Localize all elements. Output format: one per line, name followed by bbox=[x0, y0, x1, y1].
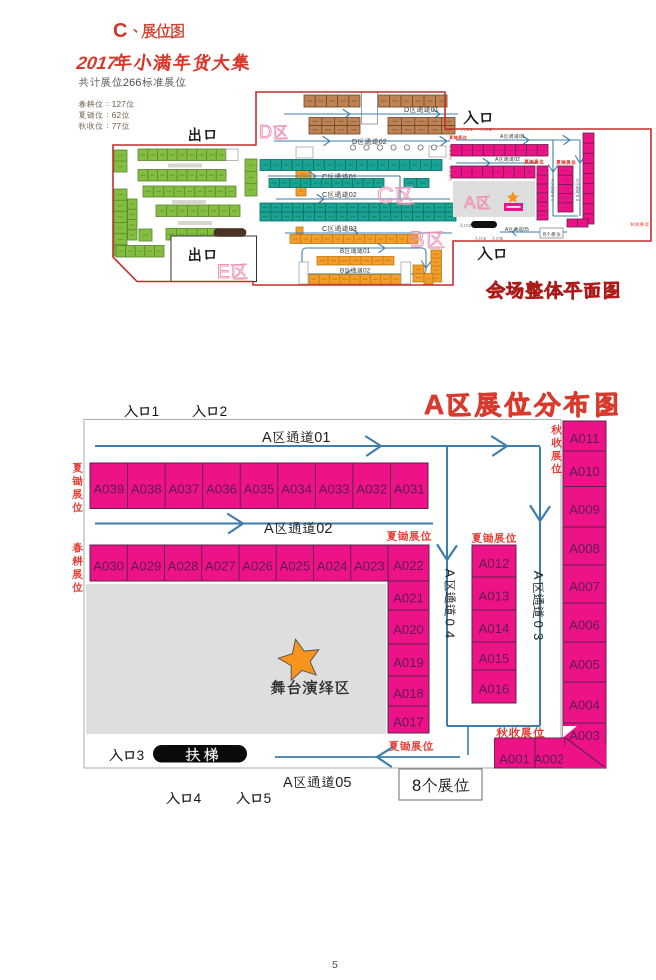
svg-text:01: 01 bbox=[314, 430, 330, 446]
svg-text:05: 05 bbox=[335, 775, 351, 791]
svg-text:A008: A008 bbox=[569, 541, 600, 556]
svg-text:A013: A013 bbox=[479, 589, 510, 604]
svg-text:05: 05 bbox=[523, 227, 529, 233]
svg-text:A025: A025 bbox=[279, 559, 310, 574]
svg-text:A033: A033 bbox=[319, 481, 350, 496]
svg-text:C: C bbox=[322, 224, 327, 233]
svg-text:02: 02 bbox=[316, 521, 332, 537]
svg-text:C: C bbox=[322, 190, 327, 199]
svg-text:A005: A005 bbox=[569, 657, 600, 672]
svg-text:266: 266 bbox=[123, 77, 142, 89]
svg-text:A: A bbox=[500, 134, 504, 140]
svg-text:3: 3 bbox=[137, 748, 145, 763]
svg-text:01: 01 bbox=[363, 248, 371, 255]
svg-text:4: 4 bbox=[443, 631, 458, 638]
svg-text:A: A bbox=[575, 179, 580, 182]
svg-text:A: A bbox=[464, 193, 476, 212]
svg-text:1: 1 bbox=[152, 404, 160, 419]
svg-text:03: 03 bbox=[349, 224, 357, 233]
svg-text:A: A bbox=[495, 157, 499, 163]
svg-text:A023: A023 bbox=[354, 559, 385, 574]
svg-text:A007: A007 bbox=[569, 579, 600, 594]
svg-text:3: 3 bbox=[531, 633, 546, 640]
svg-text:02: 02 bbox=[363, 268, 371, 275]
svg-text:A018: A018 bbox=[393, 686, 424, 701]
svg-text:A003: A003 bbox=[569, 728, 600, 743]
svg-text:E: E bbox=[217, 262, 230, 283]
svg-text:0: 0 bbox=[531, 621, 546, 628]
svg-text:A010: A010 bbox=[569, 464, 600, 479]
svg-text:A029: A029 bbox=[130, 559, 161, 574]
svg-text:A031: A031 bbox=[394, 481, 425, 496]
svg-text:D: D bbox=[259, 122, 272, 142]
svg-text:A015: A015 bbox=[479, 651, 510, 666]
svg-text:A016: A016 bbox=[479, 682, 510, 697]
svg-text:2017: 2017 bbox=[74, 53, 119, 73]
svg-text:A024: A024 bbox=[317, 559, 348, 574]
svg-text:C: C bbox=[377, 182, 394, 208]
svg-text:A019: A019 bbox=[393, 655, 424, 670]
svg-text:4: 4 bbox=[194, 791, 202, 806]
svg-text:A026: A026 bbox=[242, 559, 273, 574]
svg-text:01: 01 bbox=[431, 105, 439, 114]
svg-text:A006: A006 bbox=[569, 618, 600, 633]
svg-text:B: B bbox=[340, 268, 344, 275]
svg-text:A002: A002 bbox=[534, 752, 565, 767]
svg-text:A009: A009 bbox=[569, 502, 600, 517]
svg-text:A036: A036 bbox=[206, 481, 237, 496]
svg-text:0: 0 bbox=[443, 619, 458, 626]
svg-text:A: A bbox=[531, 571, 546, 580]
svg-text:B: B bbox=[340, 248, 344, 255]
svg-text:A030: A030 bbox=[93, 559, 124, 574]
svg-text:A022: A022 bbox=[393, 558, 424, 573]
svg-text:C: C bbox=[113, 20, 127, 42]
svg-text:77: 77 bbox=[112, 121, 122, 131]
svg-text:A011: A011 bbox=[570, 431, 600, 446]
svg-text:2: 2 bbox=[220, 404, 228, 419]
svg-text:02: 02 bbox=[349, 190, 357, 199]
svg-text:A: A bbox=[262, 430, 272, 446]
svg-text:A039: A039 bbox=[93, 481, 124, 496]
svg-text:5: 5 bbox=[332, 959, 338, 971]
svg-text:B: B bbox=[410, 227, 425, 252]
svg-text:01: 01 bbox=[519, 134, 525, 140]
svg-text:A020: A020 bbox=[393, 622, 424, 637]
svg-text:A021: A021 bbox=[393, 591, 424, 606]
svg-text:A: A bbox=[443, 569, 458, 578]
svg-text:A038: A038 bbox=[131, 481, 162, 496]
svg-text:A: A bbox=[264, 521, 274, 537]
svg-text:A035: A035 bbox=[244, 481, 275, 496]
svg-text:8: 8 bbox=[412, 777, 421, 795]
svg-text:A012: A012 bbox=[479, 556, 510, 571]
svg-text:62: 62 bbox=[112, 110, 122, 120]
svg-text:A034: A034 bbox=[281, 481, 312, 496]
svg-text:A001: A001 bbox=[499, 752, 530, 767]
svg-text:5: 5 bbox=[264, 791, 272, 806]
svg-text:A: A bbox=[424, 389, 444, 420]
svg-text:A037: A037 bbox=[168, 481, 199, 496]
svg-text:127: 127 bbox=[112, 99, 127, 109]
svg-text:02: 02 bbox=[514, 157, 520, 163]
svg-text:3: 3 bbox=[468, 223, 471, 228]
svg-text:A032: A032 bbox=[356, 481, 387, 496]
svg-text:8: 8 bbox=[543, 232, 546, 238]
svg-text:A017: A017 bbox=[393, 715, 424, 730]
svg-text:A028: A028 bbox=[168, 559, 199, 574]
svg-text:A027: A027 bbox=[205, 559, 236, 574]
svg-text:D: D bbox=[404, 105, 409, 114]
svg-text:A: A bbox=[283, 775, 293, 791]
svg-text:A014: A014 bbox=[479, 621, 510, 636]
svg-text:A004: A004 bbox=[569, 698, 600, 713]
